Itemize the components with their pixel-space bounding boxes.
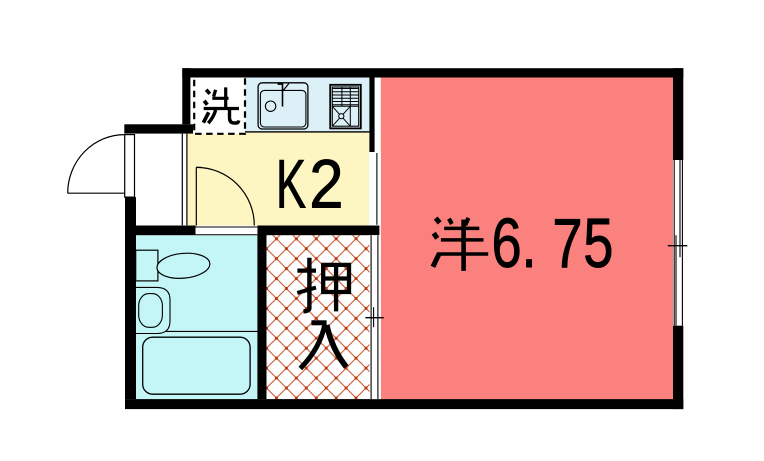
svg-text:5: 5 — [583, 205, 613, 282]
svg-text:7: 7 — [552, 205, 582, 282]
svg-text:6: 6 — [492, 205, 522, 282]
svg-text:2: 2 — [309, 145, 343, 222]
svg-text:.: . — [521, 205, 536, 282]
svg-text:K: K — [276, 146, 306, 223]
